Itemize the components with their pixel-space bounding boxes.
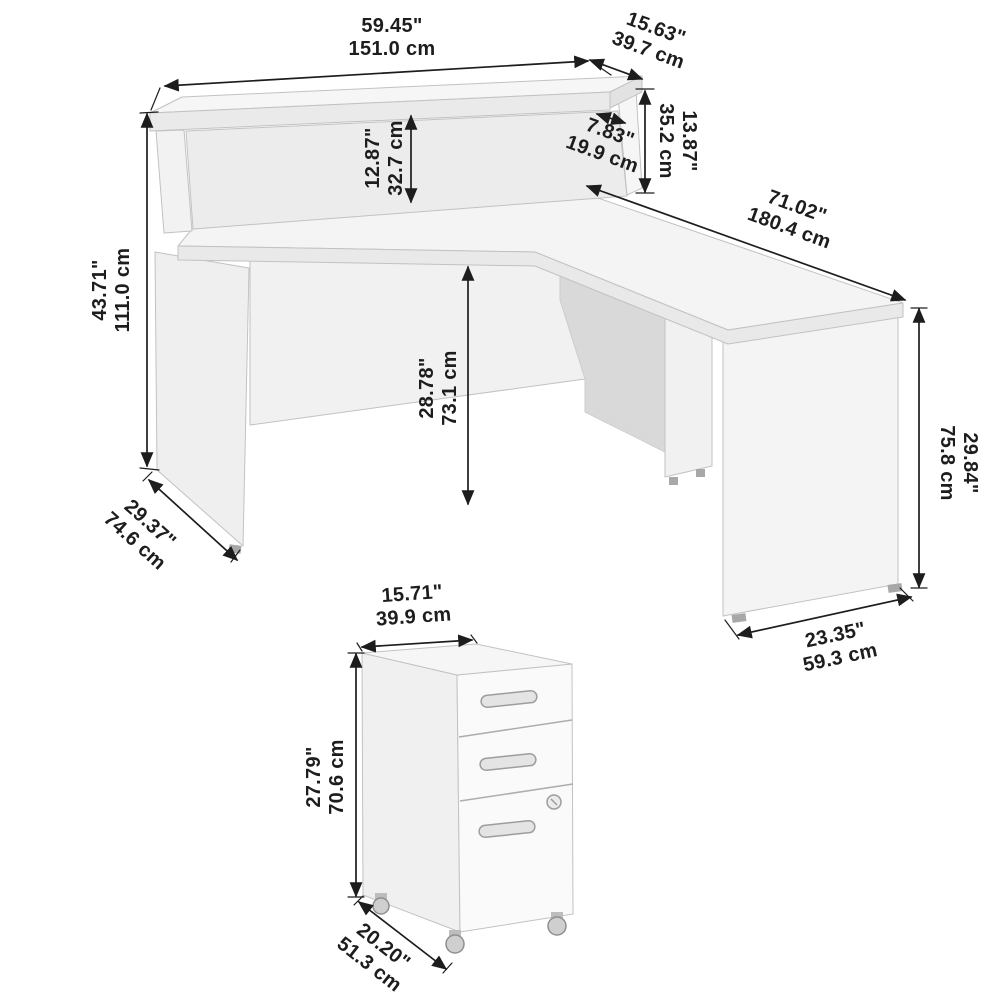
ext-tick	[143, 472, 152, 481]
caster-wheel-right	[548, 917, 566, 935]
furniture-line-art	[0, 0, 1000, 1000]
dim-label-hutch-height: 13.87" 35.2 cm	[654, 103, 700, 179]
ext-tick	[725, 620, 739, 639]
ext-tick	[140, 468, 159, 470]
return-foot-front	[732, 613, 747, 623]
dim-value-cm: 73.1 cm	[439, 350, 462, 426]
ext-tick	[151, 88, 160, 110]
dim-label-desk-height: 28.78" 73.1 cm	[416, 350, 462, 426]
support-foot-right	[696, 469, 705, 477]
diagram-canvas: 59.45" 151.0 cm 15.63" 39.7 cm 13.87" 35…	[0, 0, 1000, 1000]
cabinet-side-panel	[362, 653, 460, 932]
dim-label-hutch-opening-height: 12.87" 32.7 cm	[362, 120, 408, 196]
return-end-panel	[723, 310, 898, 616]
dim-line-hutch-depth	[590, 60, 642, 79]
dim-value-cm: 75.8 cm	[935, 425, 958, 501]
dim-value-in: 27.79"	[303, 739, 326, 815]
dim-value-in: 59.45"	[349, 15, 436, 38]
dim-label-return-height: 29.84" 75.8 cm	[935, 425, 981, 501]
dim-label-total-height: 43.71" 111.0 cm	[89, 248, 135, 333]
dim-label-hutch-width: 59.45" 151.0 cm	[349, 15, 436, 61]
support-foot-left	[669, 477, 678, 485]
ext-tick	[471, 635, 477, 643]
dim-value-in: 12.87"	[362, 120, 385, 196]
dim-value-cm: 32.7 cm	[385, 120, 408, 196]
desk-left-end-panel	[155, 252, 249, 546]
dim-value-cm: 111.0 cm	[112, 248, 135, 333]
dim-value-in: 29.84"	[958, 425, 981, 501]
caster-wheel-front	[446, 935, 464, 953]
dim-value-cm: 151.0 cm	[349, 38, 436, 61]
cabinet-illustration	[362, 644, 573, 953]
dim-value-cm: 70.6 cm	[326, 739, 349, 815]
dim-label-cabinet-height: 27.79" 70.6 cm	[303, 739, 349, 815]
caster-wheel-back	[373, 898, 389, 914]
desk-left-foot	[229, 544, 242, 554]
dim-value-in: 28.78"	[416, 350, 439, 426]
desk-illustration	[150, 76, 903, 623]
dim-value-cm: 35.2 cm	[654, 103, 677, 179]
dim-value-in: 13.87"	[677, 103, 700, 179]
dim-label-cabinet-width: 15.71" 39.9 cm	[374, 580, 453, 631]
dim-value-in: 43.71"	[89, 248, 112, 333]
